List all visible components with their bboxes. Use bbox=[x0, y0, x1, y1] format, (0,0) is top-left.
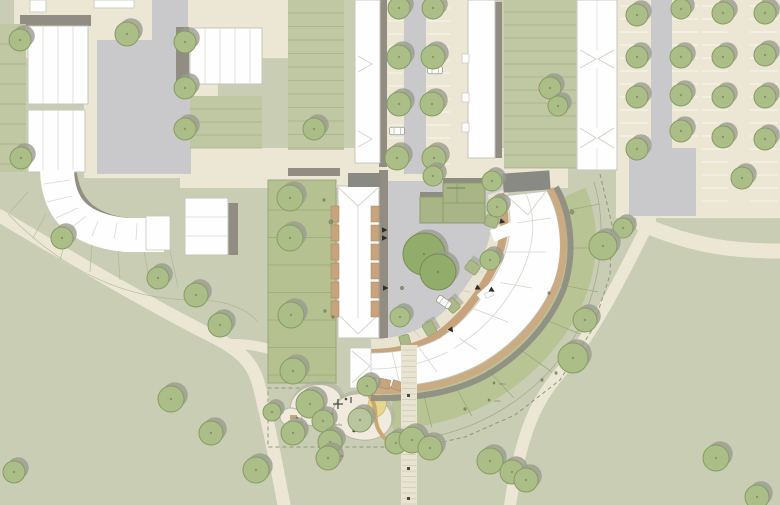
balcony-deck bbox=[371, 282, 379, 298]
tree-trunk-dot bbox=[764, 54, 766, 56]
balcony-deck bbox=[331, 206, 339, 222]
terrace-west-b bbox=[28, 110, 85, 172]
tree-trunk-dot bbox=[195, 294, 197, 296]
tree-trunk-dot bbox=[764, 138, 766, 140]
park-path-fork bbox=[232, 344, 272, 350]
entrance-canopy-dark bbox=[348, 173, 381, 187]
balcony-deck bbox=[331, 263, 339, 279]
tree-trunk-dot bbox=[292, 370, 294, 372]
bollard-light bbox=[407, 467, 410, 470]
tree-trunk-dot bbox=[722, 136, 724, 138]
tree-trunk-dot bbox=[636, 96, 638, 98]
tree-trunk-dot bbox=[722, 56, 724, 58]
parked-car bbox=[390, 127, 405, 135]
tree-trunk-dot bbox=[722, 96, 724, 98]
tree-trunk-dot bbox=[411, 439, 413, 441]
tree-canopy bbox=[388, 0, 410, 19]
tree-trunk-dot bbox=[431, 103, 433, 105]
tree-trunk-dot bbox=[715, 457, 717, 459]
tree-trunk-dot bbox=[327, 457, 329, 459]
entrance-canopy-dark bbox=[502, 170, 550, 192]
balcony-deck bbox=[371, 301, 379, 317]
balcony-deck bbox=[371, 206, 379, 222]
terrace-street-east bbox=[468, 0, 495, 158]
tree-trunk-dot bbox=[398, 103, 400, 105]
tree-trunk-dot bbox=[255, 469, 257, 471]
tree-trunk-dot bbox=[489, 259, 491, 261]
allotment-block-west bbox=[268, 180, 336, 383]
tree-trunk-dot bbox=[170, 398, 172, 400]
terrace-street-west bbox=[355, 0, 380, 163]
tree-trunk-dot bbox=[572, 357, 574, 359]
tree-trunk-dot bbox=[680, 130, 682, 132]
tree-trunk-dot bbox=[764, 12, 766, 14]
tree-trunk-dot bbox=[210, 432, 212, 434]
house-shadow bbox=[228, 203, 238, 255]
tree-trunk-dot bbox=[525, 479, 527, 481]
tree-trunk-dot bbox=[602, 245, 604, 247]
porch bbox=[462, 93, 469, 102]
tree-trunk-dot bbox=[496, 206, 498, 208]
tree-trunk-dot bbox=[433, 157, 435, 159]
tree-trunk-dot bbox=[395, 442, 397, 444]
tree-trunk-dot bbox=[61, 237, 63, 239]
tree-trunk-dot bbox=[20, 157, 22, 159]
plant-symbol bbox=[401, 287, 404, 290]
tree-trunk-dot bbox=[511, 471, 513, 473]
tree-trunk-dot bbox=[680, 8, 682, 10]
tree-trunk-dot bbox=[741, 177, 743, 179]
tree-trunk-dot bbox=[636, 14, 638, 16]
tree-trunk-dot bbox=[13, 471, 15, 473]
tree-canopy bbox=[422, 0, 444, 19]
tree-trunk-dot bbox=[398, 7, 400, 9]
tree-trunk-dot bbox=[289, 237, 291, 239]
mews-shadow bbox=[288, 168, 340, 176]
balcony-deck bbox=[371, 244, 379, 260]
tree-trunk-dot bbox=[184, 128, 186, 130]
tree-trunk-dot bbox=[557, 105, 559, 107]
balcony-deck bbox=[331, 301, 339, 317]
tree-trunk-dot bbox=[636, 148, 638, 150]
tree-trunk-dot bbox=[491, 180, 493, 182]
tree-trunk-dot bbox=[396, 157, 398, 159]
tree-trunk-dot bbox=[366, 385, 368, 387]
tree-trunk-dot bbox=[309, 403, 311, 405]
tree-trunk-dot bbox=[313, 128, 315, 130]
tree-trunk-dot bbox=[19, 39, 21, 41]
car-body bbox=[390, 127, 405, 135]
tree-trunk-dot bbox=[399, 316, 401, 318]
tree-trunk-dot bbox=[429, 447, 431, 449]
balcony-deck bbox=[331, 282, 339, 298]
detached-house bbox=[185, 198, 228, 255]
spot-level-text: 4.5m bbox=[499, 382, 506, 386]
tree-trunk-dot bbox=[423, 253, 425, 255]
site-plan-svg: Trellis4.5m4.5m bbox=[0, 0, 780, 505]
tree-trunk-dot bbox=[764, 96, 766, 98]
tree-trunk-dot bbox=[289, 197, 291, 199]
balcony-deck bbox=[371, 263, 379, 279]
porch bbox=[462, 123, 469, 132]
tree-trunk-dot bbox=[722, 12, 724, 14]
tree-trunk-dot bbox=[756, 496, 758, 498]
tree-trunk-dot bbox=[290, 314, 292, 316]
bldg-shadow-center bbox=[379, 170, 388, 340]
lane-shadow-1 bbox=[20, 15, 91, 26]
tree-trunk-dot bbox=[437, 271, 439, 273]
terrace-north-row bbox=[190, 28, 262, 84]
tree-trunk-dot bbox=[398, 56, 400, 58]
tree-trunk-dot bbox=[622, 227, 624, 229]
bollard-light bbox=[407, 497, 410, 500]
porch bbox=[462, 54, 469, 63]
balcony-deck bbox=[331, 225, 339, 241]
tree-trunk-dot bbox=[292, 432, 294, 434]
tree-trunk-dot bbox=[359, 419, 361, 421]
tree-trunk-dot bbox=[157, 277, 159, 279]
spot-level-text: 4.5m bbox=[494, 399, 501, 403]
balcony-deck bbox=[331, 244, 339, 260]
tree-trunk-dot bbox=[549, 87, 551, 89]
tree-trunk-dot bbox=[489, 460, 491, 462]
terrace-curve-end bbox=[146, 216, 170, 250]
tree-trunk-dot bbox=[680, 94, 682, 96]
lot-drive bbox=[651, 0, 672, 154]
plant-symbol bbox=[329, 220, 333, 224]
tree-trunk-dot bbox=[322, 420, 324, 422]
tree-trunk-dot bbox=[432, 56, 434, 58]
green-roof-store-small bbox=[420, 197, 443, 223]
balcony-deck bbox=[371, 225, 379, 241]
tree-trunk-dot bbox=[584, 319, 586, 321]
tree-trunk-dot bbox=[219, 324, 221, 326]
tree-trunk-dot bbox=[271, 411, 273, 413]
bldg-edge-top bbox=[30, 0, 46, 12]
tree-trunk-dot bbox=[636, 56, 638, 58]
tree-canopy bbox=[745, 485, 769, 505]
site-plan: Trellis4.5m4.5m bbox=[0, 0, 780, 505]
play-dot bbox=[345, 398, 348, 401]
tree-trunk-dot bbox=[432, 175, 434, 177]
tree-trunk-dot bbox=[680, 56, 682, 58]
tree-trunk-dot bbox=[432, 7, 434, 9]
tree-trunk-dot bbox=[184, 41, 186, 43]
bollard-light bbox=[407, 394, 410, 397]
plant-symbol bbox=[570, 210, 574, 214]
tree-trunk-dot bbox=[184, 87, 186, 89]
tree-trunk-dot bbox=[126, 33, 128, 35]
bldg-edge-top bbox=[94, 0, 134, 8]
